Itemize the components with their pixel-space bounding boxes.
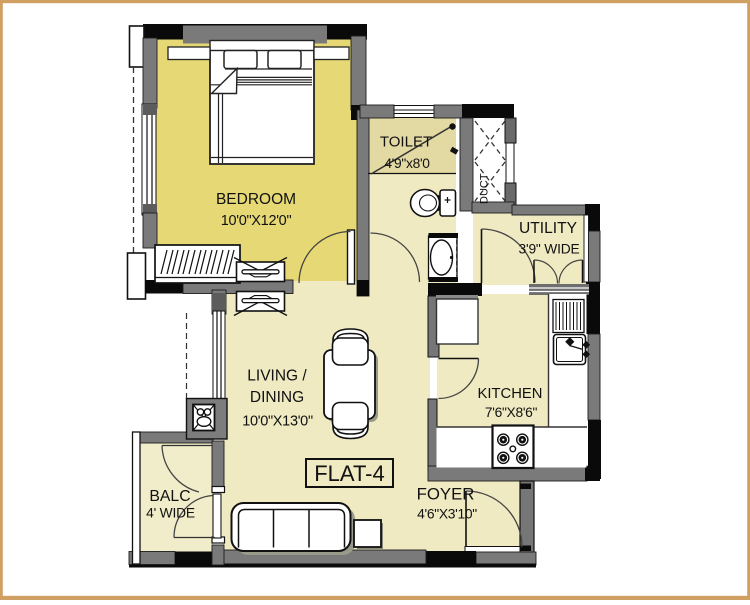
svg-text:BEDROOM: BEDROOM (216, 191, 296, 208)
svg-text:4'9"x8'0: 4'9"x8'0 (384, 156, 430, 171)
svg-text:BALC: BALC (149, 488, 190, 505)
svg-text:3'9" WIDE: 3'9" WIDE (519, 242, 580, 257)
svg-text:LIVING /: LIVING / (247, 368, 307, 385)
svg-text:UTILITY: UTILITY (519, 220, 578, 237)
svg-text:4' WIDE: 4' WIDE (146, 506, 195, 521)
svg-text:DUCT: DUCT (479, 173, 491, 204)
svg-text:DINING: DINING (250, 389, 304, 406)
svg-text:7'6"X8'6": 7'6"X8'6" (485, 405, 538, 420)
svg-text:FOYER: FOYER (417, 485, 475, 504)
svg-text:FLAT-4: FLAT-4 (314, 461, 385, 486)
svg-text:4'6"X3'10": 4'6"X3'10" (417, 507, 477, 522)
svg-text:10'0"X12'0": 10'0"X12'0" (221, 213, 292, 229)
svg-text:10'0"X13'0": 10'0"X13'0" (242, 414, 313, 430)
svg-text:KITCHEN: KITCHEN (478, 386, 543, 402)
svg-text:TOILET: TOILET (380, 134, 432, 151)
